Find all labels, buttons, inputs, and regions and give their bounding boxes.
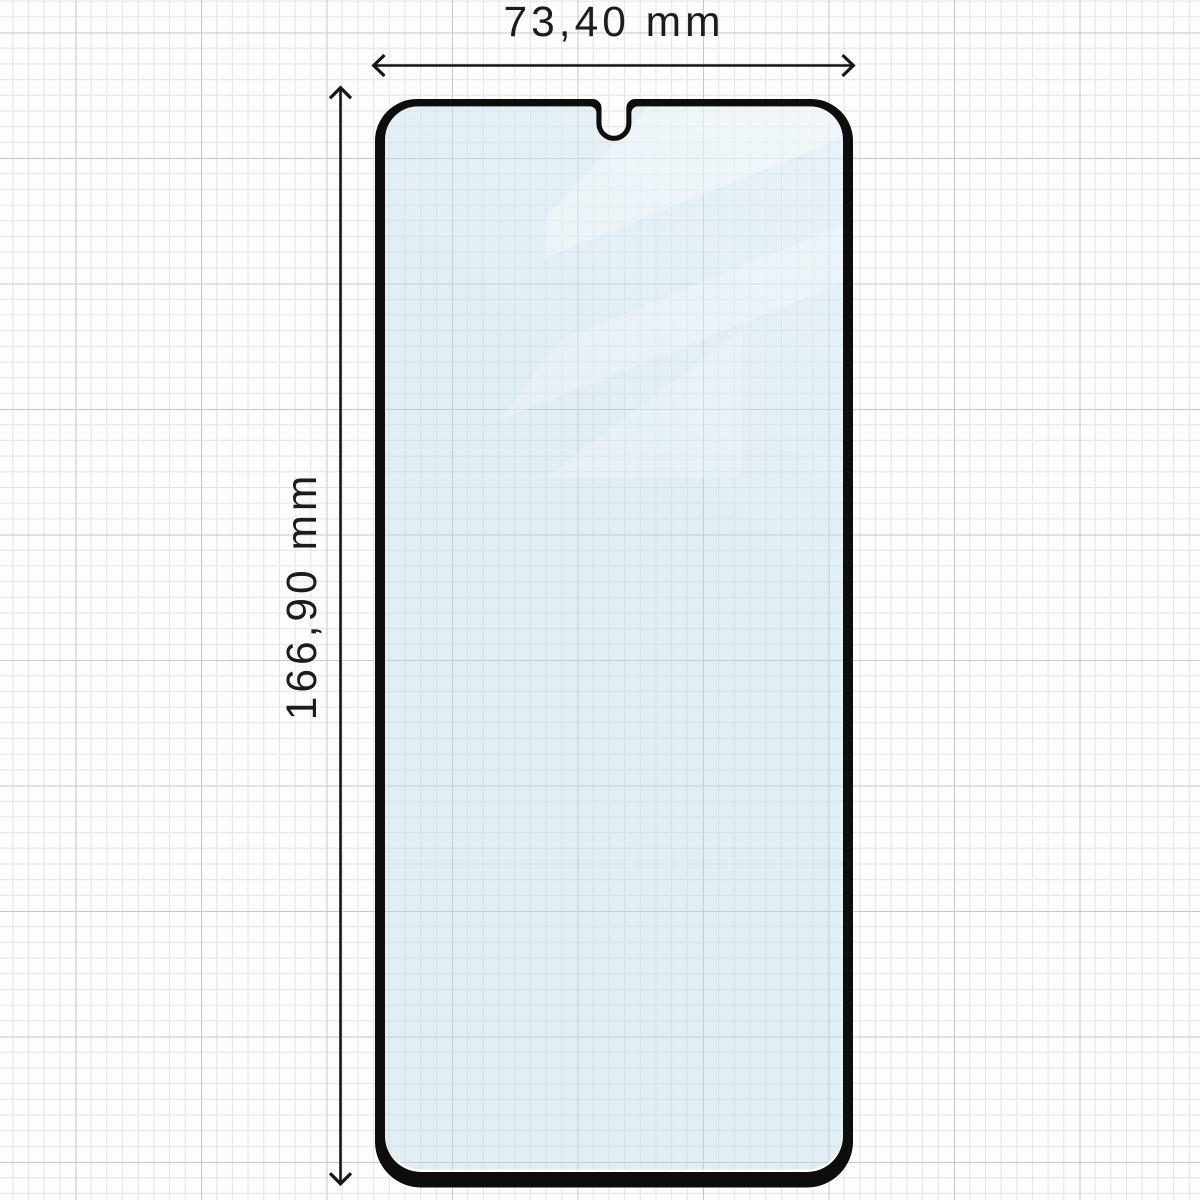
svg-text:73,40 mm: 73,40 mm [504,0,725,46]
svg-text:166,90 mm: 166,90 mm [279,472,326,721]
